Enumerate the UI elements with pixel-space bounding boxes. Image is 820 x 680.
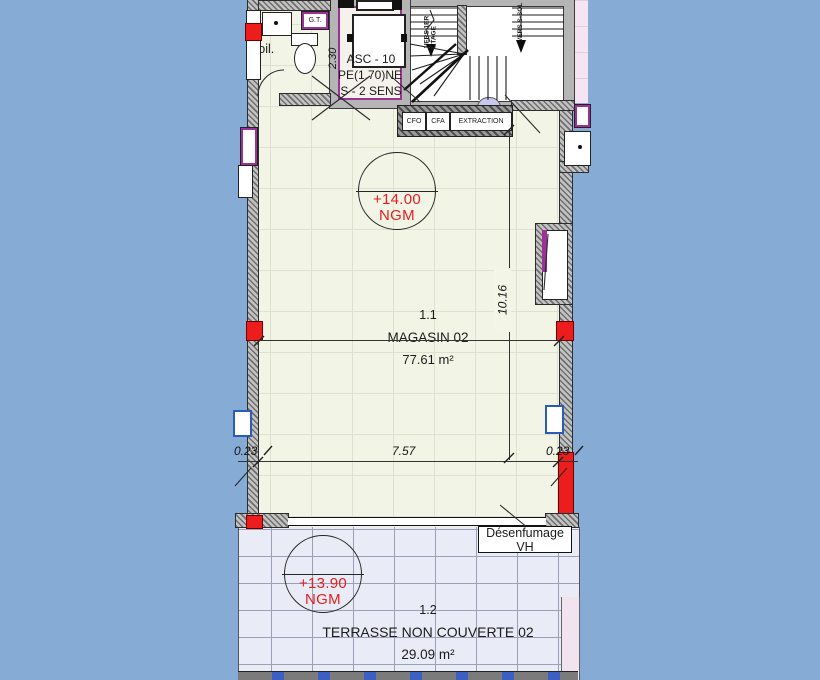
magasin-area: 77.61 m² xyxy=(338,350,518,368)
terrace-pink-strip xyxy=(561,597,580,673)
right-red-element-mid xyxy=(556,321,574,341)
depth-dimension-value: 10.16 xyxy=(494,268,511,332)
toilet-bottom-wall xyxy=(280,94,330,105)
stairs-up-arrow-icon xyxy=(426,44,436,57)
cfa-box: CFA xyxy=(426,112,450,131)
technical-duct-box: G.T. xyxy=(301,11,329,30)
left-red-element-top xyxy=(245,23,262,41)
right-window-frame xyxy=(542,230,547,272)
toilet-bowl xyxy=(294,43,316,74)
right-fixture-dot xyxy=(578,145,582,149)
level-marker-magasin: +14.00 NGM xyxy=(358,152,436,230)
sink-drain-dot xyxy=(274,21,278,25)
left-window-small xyxy=(238,165,253,198)
right-fixture-box xyxy=(564,131,591,166)
stairs-down-arrow-icon xyxy=(516,40,526,53)
shaft-top-door xyxy=(356,0,394,11)
right-drain-symbol xyxy=(545,405,564,434)
mid-dimension-line xyxy=(259,340,559,341)
dim-wall-left: 0.23 xyxy=(234,444,257,458)
left-window-top xyxy=(246,10,261,80)
floor-plan-canvas: VERS 1ER ETAGE VERS S-SOL ASC - 10 PE(1.… xyxy=(0,0,820,680)
right-window-purple xyxy=(574,104,591,128)
dim-width: 7.57 xyxy=(392,444,415,458)
terrace-level-value: +13.90 xyxy=(285,575,361,592)
terrace-number: 1.2 xyxy=(338,602,518,618)
bottom-red-element xyxy=(246,515,263,529)
elevator-label-line3: S - 2 SENS xyxy=(334,84,408,98)
terrace-name: TERRASSE NON COUVERTE 02 xyxy=(298,624,558,640)
stairs-up-label: VERS 1ER ETAGE xyxy=(424,2,437,48)
magasin-level-datum: NGM xyxy=(359,207,435,224)
magasin-number: 1.1 xyxy=(338,306,518,324)
stairs-down-label: VERS S-SOL xyxy=(514,2,527,42)
elevator-door-rail-left xyxy=(347,34,353,42)
stair-mid-wall xyxy=(458,6,466,54)
elevator-door-rail-right xyxy=(401,34,407,42)
shaft-top-fitting-left xyxy=(338,0,354,8)
magasin-level-value: +14.00 xyxy=(359,191,435,208)
left-drain-symbol xyxy=(233,410,252,437)
elevator-width-dimension: 2.30 xyxy=(326,36,340,80)
terrace-bottom-edge xyxy=(238,672,578,680)
width-dimension-line xyxy=(238,461,578,462)
elevator-label-line2: PE(1.70)NE xyxy=(332,68,408,82)
dim-wall-right: 0.23 xyxy=(546,444,569,458)
terrace-area: 29.09 m² xyxy=(338,646,518,662)
shaft-top-fitting-right xyxy=(392,0,402,10)
smoke-vent-label: Désenfumage VH xyxy=(478,526,572,553)
cfo-box: CFO xyxy=(402,112,426,131)
toilet-top-wall xyxy=(248,1,330,10)
top-right-wall xyxy=(512,101,574,110)
adjacent-room-sliver xyxy=(574,0,588,103)
extraction-box: EXTRACTION xyxy=(450,112,512,131)
left-window-purple xyxy=(240,127,258,166)
elevator-label-line1: ASC - 10 xyxy=(336,52,406,66)
left-red-element-mid xyxy=(246,321,263,341)
